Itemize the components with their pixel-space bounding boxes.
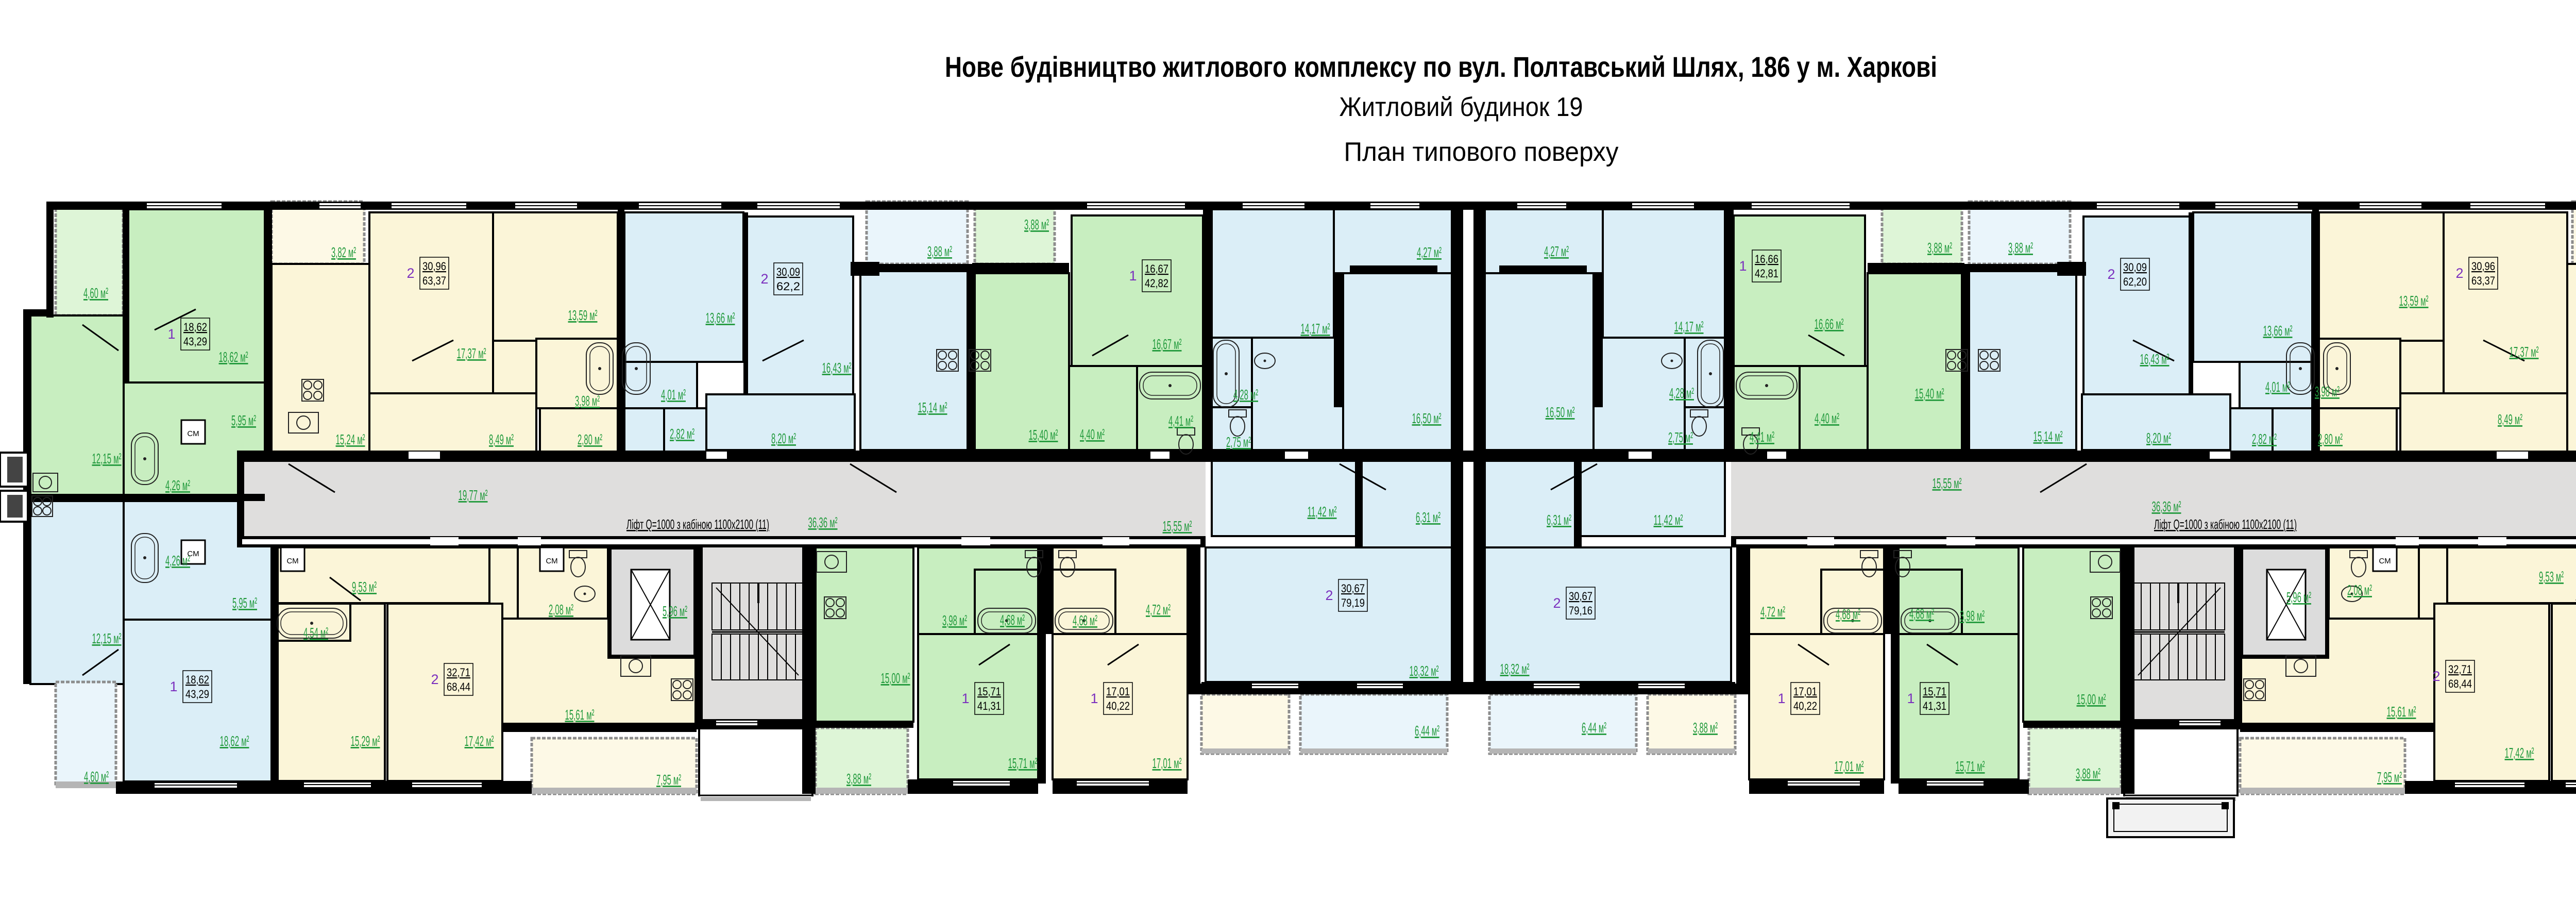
svg-text:4,26 м²: 4,26 м²	[165, 477, 190, 493]
svg-text:14,17 м²: 14,17 м²	[1674, 319, 1704, 335]
svg-text:6,44 м²: 6,44 м²	[1415, 723, 1439, 739]
svg-text:2,75 м²: 2,75 м²	[1668, 429, 1693, 445]
svg-text:8,49 м²: 8,49 м²	[2498, 411, 2522, 427]
svg-text:63,37: 63,37	[2471, 274, 2495, 287]
svg-text:30,09: 30,09	[2123, 261, 2147, 274]
svg-text:2: 2	[431, 672, 438, 687]
svg-text:15,40 м²: 15,40 м²	[1029, 427, 1058, 443]
svg-text:32,71: 32,71	[2448, 663, 2472, 676]
svg-text:68,44: 68,44	[2448, 677, 2472, 690]
svg-text:3,88 м²: 3,88 м²	[1024, 217, 1049, 232]
svg-text:16,66 м²: 16,66 м²	[1815, 316, 1844, 332]
svg-text:7,95 м²: 7,95 м²	[656, 772, 681, 788]
svg-text:43,29: 43,29	[185, 688, 209, 701]
svg-text:15,00 м²: 15,00 м²	[2077, 691, 2106, 707]
svg-text:3,82 м²: 3,82 м²	[331, 244, 356, 260]
svg-text:19,77 м²: 19,77 м²	[459, 487, 488, 503]
svg-text:4,01 м²: 4,01 м²	[2265, 379, 2290, 395]
svg-text:2: 2	[760, 271, 768, 287]
svg-text:3,88 м²: 3,88 м²	[2076, 765, 2100, 781]
svg-text:2,80 м²: 2,80 м²	[2318, 431, 2343, 447]
svg-text:41,31: 41,31	[977, 700, 1001, 712]
svg-text:7,95 м²: 7,95 м²	[2377, 769, 2402, 785]
svg-text:13,66 м²: 13,66 м²	[706, 310, 735, 326]
svg-text:1: 1	[1129, 268, 1137, 284]
svg-text:15,61 м²: 15,61 м²	[565, 707, 595, 723]
svg-text:30,96: 30,96	[422, 260, 446, 273]
svg-text:6,44 м²: 6,44 м²	[1582, 720, 1606, 736]
svg-text:3,88 м²: 3,88 м²	[846, 771, 871, 787]
svg-text:4,60 м²: 4,60 м²	[84, 769, 109, 785]
svg-text:13,59 м²: 13,59 м²	[2399, 293, 2429, 309]
svg-text:16,66: 16,66	[1755, 253, 1778, 265]
svg-text:17,42 м²: 17,42 м²	[2505, 745, 2534, 761]
svg-text:2,82 м²: 2,82 м²	[2252, 431, 2277, 447]
svg-text:СМ: СМ	[286, 557, 298, 565]
svg-text:36,36 м²: 36,36 м²	[808, 514, 838, 530]
svg-text:2: 2	[2107, 267, 2115, 282]
svg-text:4,28 м²: 4,28 м²	[1233, 387, 1258, 403]
svg-text:2: 2	[1553, 595, 1561, 611]
svg-text:4,01 м²: 4,01 м²	[661, 387, 686, 403]
svg-text:Житловий будинок 19: Житловий будинок 19	[1340, 92, 1583, 122]
svg-text:30,96: 30,96	[2471, 260, 2495, 273]
svg-text:17,01 м²: 17,01 м²	[1835, 758, 1864, 774]
svg-text:3,88 м²: 3,88 м²	[927, 243, 952, 259]
svg-text:1: 1	[1777, 691, 1785, 706]
svg-text:2,08 м²: 2,08 м²	[2347, 582, 2372, 598]
svg-text:17,01: 17,01	[1793, 685, 1817, 698]
svg-text:4,26 м²: 4,26 м²	[165, 553, 190, 569]
svg-text:2: 2	[1325, 588, 1333, 603]
svg-text:30,67: 30,67	[1341, 582, 1365, 595]
svg-text:15,61 м²: 15,61 м²	[2387, 704, 2416, 720]
svg-text:4,68 м²: 4,68 м²	[1836, 606, 1860, 622]
svg-text:17,37 м²: 17,37 м²	[2510, 344, 2539, 360]
svg-text:18,32 м²: 18,32 м²	[1500, 661, 1530, 677]
svg-text:СМ: СМ	[2379, 557, 2391, 565]
svg-text:2,75 м²: 2,75 м²	[1226, 434, 1251, 450]
svg-text:18,62 м²: 18,62 м²	[220, 733, 249, 749]
svg-text:36,36 м²: 36,36 м²	[2152, 498, 2181, 514]
svg-text:63,37: 63,37	[422, 274, 446, 287]
svg-text:8,20 м²: 8,20 м²	[771, 430, 796, 446]
svg-text:Ліфт Q=1000 з кабіною 1100х210: Ліфт Q=1000 з кабіною 1100х2100 (11)	[626, 517, 769, 532]
svg-text:1: 1	[167, 326, 175, 342]
svg-text:5,96 м²: 5,96 м²	[663, 603, 687, 619]
svg-text:9,53 м²: 9,53 м²	[352, 579, 377, 595]
svg-text:3,88 м²: 3,88 м²	[1927, 240, 1952, 256]
svg-text:5,95 м²: 5,95 м²	[232, 595, 257, 611]
svg-text:17,42 м²: 17,42 м²	[465, 733, 494, 749]
svg-text:Ліфт Q=1000 з кабіною 1100х210: Ліфт Q=1000 з кабіною 1100х2100 (11)	[2154, 517, 2297, 532]
svg-text:1: 1	[961, 691, 969, 706]
svg-text:16,50 м²: 16,50 м²	[1412, 410, 1442, 426]
svg-text:42,82: 42,82	[1145, 277, 1168, 290]
svg-text:32,71: 32,71	[447, 666, 470, 679]
svg-text:15,71: 15,71	[977, 685, 1001, 698]
svg-text:4,40 м²: 4,40 м²	[1815, 410, 1839, 426]
svg-text:17,01: 17,01	[1106, 685, 1130, 698]
svg-text:8,20 м²: 8,20 м²	[2146, 430, 2171, 446]
svg-text:4,27 м²: 4,27 м²	[1544, 243, 1569, 259]
svg-text:16,43 м²: 16,43 м²	[822, 360, 852, 376]
svg-text:СМ: СМ	[187, 429, 199, 438]
svg-text:1: 1	[1739, 258, 1747, 274]
svg-text:6,31 м²: 6,31 м²	[1416, 509, 1440, 525]
svg-text:8,49 м²: 8,49 м²	[489, 431, 514, 447]
svg-text:2,08 м²: 2,08 м²	[549, 602, 573, 618]
svg-text:Нове будівництво житлового ком: Нове будівництво житлового комплексу по …	[945, 51, 1937, 83]
svg-text:2: 2	[406, 265, 414, 281]
svg-text:15,40 м²: 15,40 м²	[1915, 386, 1944, 402]
svg-text:4,41 м²: 4,41 м²	[1168, 413, 1193, 429]
svg-text:79,19: 79,19	[1341, 596, 1365, 609]
svg-text:16,43 м²: 16,43 м²	[2140, 351, 2170, 367]
svg-text:4,68 м²: 4,68 м²	[1909, 606, 1934, 622]
svg-text:43,29: 43,29	[183, 335, 207, 348]
svg-text:2: 2	[2455, 265, 2463, 281]
svg-text:4,28 м²: 4,28 м²	[1669, 385, 1694, 401]
svg-text:4,72 м²: 4,72 м²	[1146, 602, 1171, 618]
svg-text:13,66 м²: 13,66 м²	[2263, 323, 2293, 339]
svg-text:5,96 м²: 5,96 м²	[2286, 589, 2311, 605]
svg-text:62,2: 62,2	[776, 280, 800, 293]
svg-text:1: 1	[1090, 691, 1098, 706]
svg-text:2: 2	[2432, 669, 2440, 684]
svg-text:3,88 м²: 3,88 м²	[2008, 240, 2033, 256]
svg-text:3,98 м²: 3,98 м²	[942, 612, 967, 628]
svg-text:42,81: 42,81	[1755, 267, 1778, 280]
svg-text:30,09: 30,09	[776, 265, 800, 278]
svg-text:3,98 м²: 3,98 м²	[1960, 608, 1985, 624]
svg-text:68,44: 68,44	[447, 680, 470, 693]
svg-text:30,67: 30,67	[1569, 590, 1592, 603]
svg-text:3,98 м²: 3,98 м²	[2315, 384, 2340, 399]
svg-text:16,67 м²: 16,67 м²	[1153, 336, 1182, 352]
svg-text:2,80 м²: 2,80 м²	[578, 431, 602, 447]
svg-text:1: 1	[1907, 691, 1914, 706]
svg-text:4,41 м²: 4,41 м²	[1750, 429, 1774, 445]
svg-text:12,15 м²: 12,15 м²	[92, 451, 122, 467]
svg-text:4,54 м²: 4,54 м²	[303, 625, 328, 641]
svg-text:4,72 м²: 4,72 м²	[1760, 604, 1785, 620]
svg-text:18,32 м²: 18,32 м²	[1410, 663, 1439, 679]
svg-text:5,95 м²: 5,95 м²	[231, 412, 256, 428]
svg-text:СМ: СМ	[546, 557, 557, 565]
svg-text:18,62: 18,62	[183, 321, 207, 334]
svg-text:11,42 м²: 11,42 м²	[1654, 512, 1683, 528]
svg-text:15,55 м²: 15,55 м²	[1163, 518, 1192, 534]
svg-text:18,62 м²: 18,62 м²	[219, 349, 248, 365]
svg-text:4,27 м²: 4,27 м²	[1417, 244, 1442, 260]
svg-text:15,00 м²: 15,00 м²	[881, 670, 910, 686]
svg-text:13,59 м²: 13,59 м²	[568, 307, 598, 323]
svg-text:41,31: 41,31	[1923, 700, 1946, 712]
svg-text:4,40 м²: 4,40 м²	[1080, 426, 1105, 442]
svg-text:15,71: 15,71	[1923, 685, 1946, 698]
svg-text:17,37 м²: 17,37 м²	[457, 345, 486, 361]
svg-text:1: 1	[170, 679, 177, 694]
svg-text:3,88 м²: 3,88 м²	[1693, 720, 1718, 736]
svg-text:15,71 м²: 15,71 м²	[1956, 758, 1985, 774]
svg-text:3,98 м²: 3,98 м²	[575, 393, 600, 409]
svg-text:15,24 м²: 15,24 м²	[336, 431, 365, 447]
svg-text:16,50 м²: 16,50 м²	[1546, 404, 1575, 420]
svg-text:15,55 м²: 15,55 м²	[1933, 475, 1962, 491]
svg-text:11,42 м²: 11,42 м²	[1308, 504, 1337, 520]
svg-text:15,14 м²: 15,14 м²	[2033, 428, 2063, 444]
svg-text:79,16: 79,16	[1569, 604, 1592, 617]
svg-text:4,68 м²: 4,68 м²	[1000, 612, 1025, 628]
svg-text:18,62: 18,62	[185, 673, 209, 686]
svg-text:17,01 м²: 17,01 м²	[1153, 755, 1182, 771]
svg-text:62,20: 62,20	[2123, 275, 2147, 288]
svg-text:4,60 м²: 4,60 м²	[83, 285, 108, 301]
svg-text:СМ: СМ	[187, 550, 199, 558]
svg-text:14,17 м²: 14,17 м²	[1301, 321, 1330, 337]
svg-text:15,14 м²: 15,14 м²	[918, 399, 947, 415]
svg-text:План типового поверху: План типового поверху	[1344, 137, 1619, 167]
svg-text:40,22: 40,22	[1106, 700, 1130, 712]
svg-text:2,82 м²: 2,82 м²	[670, 426, 694, 442]
svg-text:15,71 м²: 15,71 м²	[1008, 755, 1038, 771]
svg-text:12,15 м²: 12,15 м²	[92, 630, 122, 646]
svg-text:9,53 м²: 9,53 м²	[2539, 569, 2564, 585]
svg-text:15,29 м²: 15,29 м²	[351, 733, 380, 749]
svg-text:16,67: 16,67	[1145, 262, 1168, 275]
svg-text:40,22: 40,22	[1793, 700, 1817, 712]
svg-text:4,68 м²: 4,68 м²	[1073, 612, 1097, 628]
svg-text:6,31 м²: 6,31 м²	[1547, 512, 1571, 528]
